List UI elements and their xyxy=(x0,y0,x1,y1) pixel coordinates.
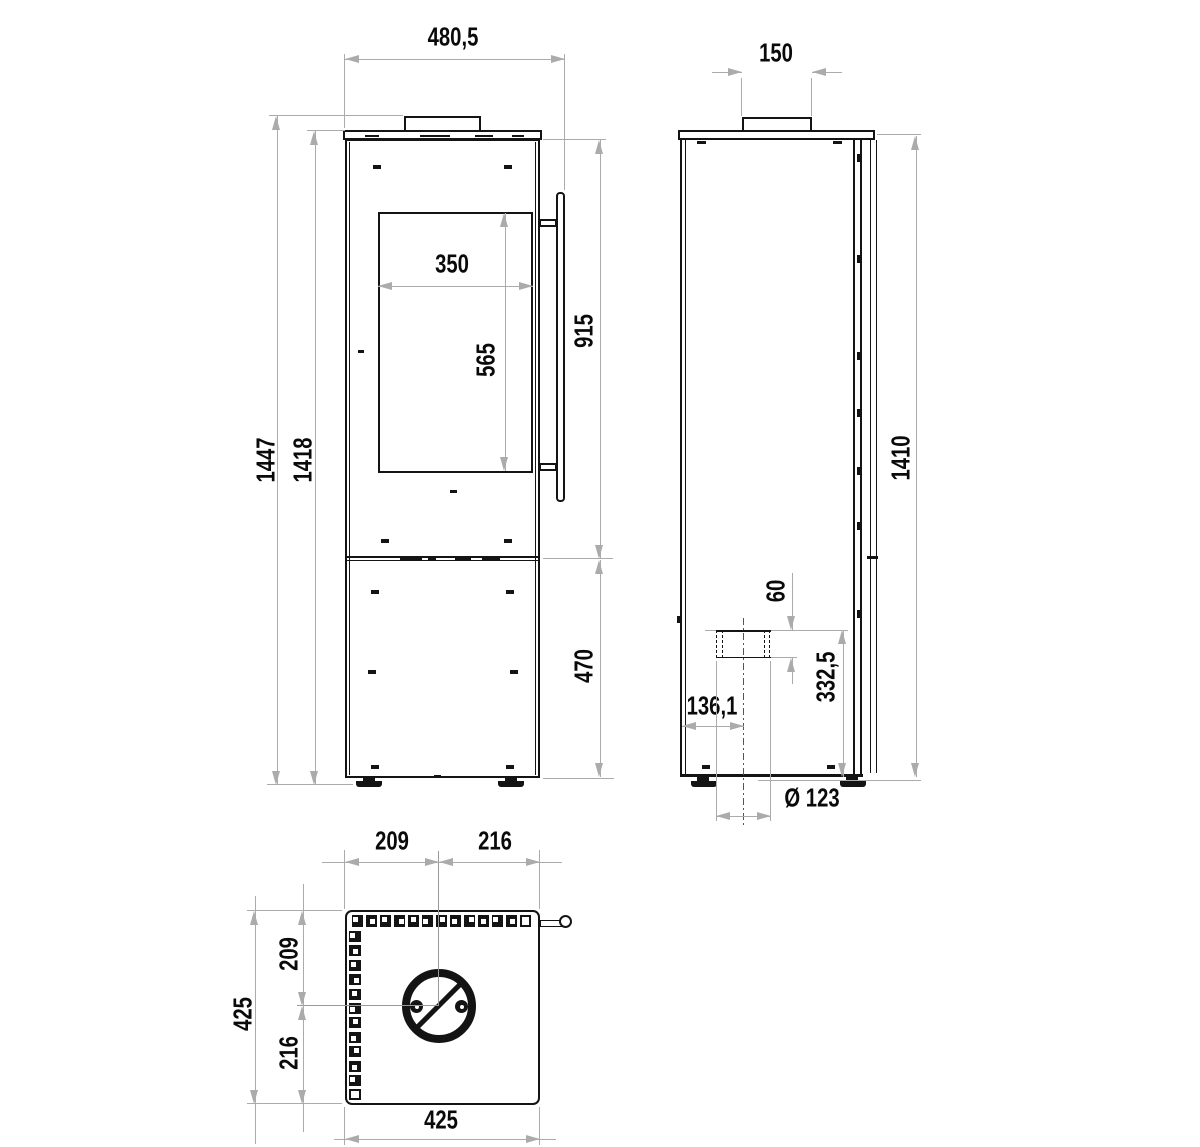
fastener-slot xyxy=(373,165,381,169)
dim-front-overall-width: 480,5 xyxy=(428,22,479,53)
vent-hole xyxy=(520,915,531,927)
dim-plan-top-left: 209 xyxy=(375,826,409,857)
plate-vent-dash xyxy=(475,135,493,137)
arrowhead xyxy=(812,68,826,76)
divider-dash xyxy=(428,557,436,560)
vent-hole xyxy=(366,915,377,927)
ext-line-floor xyxy=(758,780,921,781)
vent-hole xyxy=(349,960,361,971)
body-divider-line xyxy=(345,560,540,561)
fastener-slot xyxy=(368,670,376,674)
ext-line xyxy=(741,78,742,116)
ext-line xyxy=(564,54,565,190)
back-wall-clip xyxy=(857,522,862,530)
arrowhead xyxy=(526,858,540,866)
arrowhead xyxy=(500,213,508,227)
vent-row xyxy=(352,915,531,927)
arrowhead xyxy=(838,763,846,777)
rear-heat-shield xyxy=(870,140,877,773)
vent-hole xyxy=(464,915,475,927)
vent-louver-mark xyxy=(370,919,375,924)
arrowhead xyxy=(298,992,306,1006)
arrowhead xyxy=(345,1135,359,1143)
vent-hole xyxy=(349,1089,361,1100)
dim-line xyxy=(600,140,601,559)
back-wall-clip xyxy=(857,154,862,162)
vent-hole xyxy=(349,1017,361,1028)
fastener-slot xyxy=(506,590,514,594)
arrowhead xyxy=(298,1090,306,1104)
dim-flue-collar-width: 150 xyxy=(759,38,793,69)
back-wall-clip xyxy=(857,610,862,618)
flue-bolt-ear xyxy=(410,1000,423,1013)
ext-line xyxy=(771,630,848,631)
vent-hole xyxy=(352,915,363,927)
dim-line xyxy=(505,213,506,471)
fastener-slot xyxy=(381,539,389,543)
back-wall-clip xyxy=(857,352,862,360)
vent-louver-mark xyxy=(351,1036,356,1041)
fastener-slot xyxy=(697,141,706,144)
vent-louver-mark xyxy=(399,919,404,924)
vent-hole xyxy=(394,915,405,927)
vent-louver-mark xyxy=(351,962,356,967)
dim-front-total-height: 1447 xyxy=(251,437,282,482)
ext-line xyxy=(247,910,342,911)
vent-hole xyxy=(349,945,361,956)
door-handle-bar xyxy=(556,192,565,502)
dim-air-inlet-center-height: 332,5 xyxy=(811,652,842,703)
vent-louver-mark xyxy=(423,919,428,924)
plate-vent-dash xyxy=(512,135,524,137)
divider-dash xyxy=(482,557,500,560)
dim-base-section-height: 470 xyxy=(569,649,600,683)
dim-plan-top-right: 216 xyxy=(478,826,512,857)
vent-hole xyxy=(349,1075,361,1086)
fastener-slot xyxy=(506,765,514,769)
arrowhead xyxy=(682,722,696,730)
dim-line xyxy=(378,286,533,287)
arrowhead xyxy=(345,858,359,866)
ext-line xyxy=(770,661,771,821)
air-inlet-hidden-edge xyxy=(769,630,770,658)
dim-door-section-height: 915 xyxy=(569,314,600,348)
dim-line xyxy=(334,1139,556,1140)
vent-hole xyxy=(450,915,461,927)
vent-hole xyxy=(408,915,419,927)
vent-louver-mark xyxy=(354,978,359,983)
back-wall-clip xyxy=(857,467,862,475)
dim-line xyxy=(843,630,844,777)
back-wall-clip xyxy=(857,255,862,263)
arrowhead xyxy=(716,812,730,820)
fastener-slot xyxy=(510,670,518,674)
vent-col xyxy=(349,931,361,1100)
ext-line-floor xyxy=(543,778,614,779)
bolt-center xyxy=(460,1005,464,1009)
arrowhead xyxy=(298,1006,306,1020)
fastener-slot xyxy=(702,765,710,769)
dim-front-body-height: 1418 xyxy=(288,437,319,482)
ext-line xyxy=(269,115,403,116)
fastener-slot xyxy=(504,165,512,169)
arrowhead xyxy=(250,911,258,925)
fastener-slot xyxy=(434,775,441,778)
fastener-slot xyxy=(371,765,379,769)
vent-hole xyxy=(506,915,517,927)
vent-louver-mark xyxy=(440,917,445,922)
arrowhead xyxy=(787,616,795,630)
vent-louver-mark xyxy=(354,1048,359,1053)
fastener-slot xyxy=(827,765,835,769)
arrowhead xyxy=(425,858,439,866)
arrowhead xyxy=(595,560,603,574)
plate-vent-dash xyxy=(420,135,450,137)
arrowhead xyxy=(911,136,919,150)
front-edge-side xyxy=(680,139,686,777)
arrowhead xyxy=(519,282,533,290)
technical-drawing-canvas: 480,5 1447 1418 350 565 915 xyxy=(0,0,1200,1147)
dim-line xyxy=(600,560,601,777)
dim-line xyxy=(345,59,565,60)
vent-hole xyxy=(349,974,361,985)
vent-louver-mark xyxy=(493,917,498,922)
dim-glass-height: 565 xyxy=(471,343,502,377)
vent-louver-mark xyxy=(510,919,515,924)
flue-centerline-vertical xyxy=(438,851,439,1006)
fastener-slot xyxy=(504,539,512,543)
vent-hole xyxy=(349,1061,361,1072)
divider-dash xyxy=(455,557,471,560)
top-plate-side xyxy=(678,130,875,140)
vent-louver-mark xyxy=(353,1019,358,1024)
vent-louver-mark xyxy=(350,1077,355,1082)
dim-air-inlet-height: 60 xyxy=(761,580,792,603)
fastener-slot xyxy=(371,590,379,594)
plate-vent-dash xyxy=(365,135,379,137)
arrowhead xyxy=(757,812,771,820)
back-wall-side xyxy=(853,139,862,776)
arrowhead xyxy=(551,55,565,63)
heat-shield-joint xyxy=(867,556,878,559)
arrowhead xyxy=(439,858,453,866)
dim-glass-width: 350 xyxy=(435,249,469,280)
arrowhead xyxy=(838,630,846,644)
dim-plan-left-total: 425 xyxy=(228,997,259,1031)
ext-line xyxy=(811,78,812,116)
door-handle-bracket xyxy=(539,463,557,471)
arrowhead xyxy=(310,771,318,785)
fastener-slot xyxy=(358,350,364,353)
vent-hole xyxy=(478,915,489,927)
divider-dash xyxy=(400,557,422,560)
dim-plan-left-upper: 209 xyxy=(274,937,305,971)
arrowhead xyxy=(595,763,603,777)
ext-line xyxy=(705,630,716,631)
air-inlet-hidden-edge xyxy=(716,630,717,658)
vent-louver-mark xyxy=(481,919,486,924)
flue-bolt-ear xyxy=(455,1000,468,1013)
vent-hole xyxy=(492,915,503,927)
vent-louver-mark xyxy=(469,917,474,922)
arrowhead xyxy=(345,55,359,63)
ext-line xyxy=(771,657,797,658)
vent-hole xyxy=(349,989,361,1000)
vent-louver-mark xyxy=(353,949,358,954)
ext-line xyxy=(247,1103,342,1104)
vent-hole xyxy=(422,915,433,927)
vent-hole xyxy=(349,931,361,942)
arrowhead xyxy=(595,140,603,154)
vent-louver-mark xyxy=(411,917,416,922)
vent-louver-mark xyxy=(352,1065,357,1070)
arrowhead xyxy=(728,68,742,76)
foot xyxy=(498,781,524,787)
plan-handle-knob xyxy=(559,915,572,928)
dim-air-inlet-offset: 136,1 xyxy=(687,691,738,722)
air-inlet-hidden-edge xyxy=(722,630,723,658)
ext-line xyxy=(716,661,717,821)
vent-louver-mark xyxy=(350,933,355,938)
fastener-slot xyxy=(833,141,842,144)
dim-plan-bottom-width: 425 xyxy=(424,1105,458,1136)
vent-louver-mark xyxy=(382,917,387,922)
vent-louver-mark xyxy=(350,1007,355,1012)
dim-side-height: 1410 xyxy=(886,435,917,480)
arrowhead xyxy=(787,658,795,672)
arrowhead xyxy=(378,282,392,290)
air-inlet-hidden-edge xyxy=(764,630,765,658)
fastener-slot xyxy=(450,490,457,493)
arrowhead xyxy=(526,1135,540,1143)
foot xyxy=(691,781,717,787)
arrowhead xyxy=(298,911,306,925)
dim-plan-left-lower: 216 xyxy=(274,1036,305,1070)
vent-louver-mark xyxy=(352,991,357,996)
vent-hole xyxy=(349,1046,361,1057)
arrowhead xyxy=(272,116,280,130)
vent-louver-mark xyxy=(452,919,457,924)
door-handle-bracket xyxy=(539,219,557,227)
arrowhead xyxy=(272,771,280,785)
arrowhead xyxy=(911,763,919,777)
arrowhead xyxy=(250,1090,258,1104)
vent-hole xyxy=(349,1032,361,1043)
foot xyxy=(840,781,866,787)
arrowhead xyxy=(310,131,318,145)
arrowhead xyxy=(500,457,508,471)
flue-centerline-horizontal xyxy=(297,1005,439,1006)
back-wall-clip xyxy=(857,409,862,417)
arrowhead xyxy=(730,722,744,730)
ext-line xyxy=(344,54,345,128)
dim-air-inlet-diameter: Ø 123 xyxy=(784,783,839,814)
vent-hole xyxy=(380,915,391,927)
vent-louver-mark xyxy=(353,917,358,922)
door-latch-mark xyxy=(677,616,682,623)
arrowhead xyxy=(595,545,603,559)
foot xyxy=(356,781,382,787)
body-divider-line xyxy=(345,556,540,558)
